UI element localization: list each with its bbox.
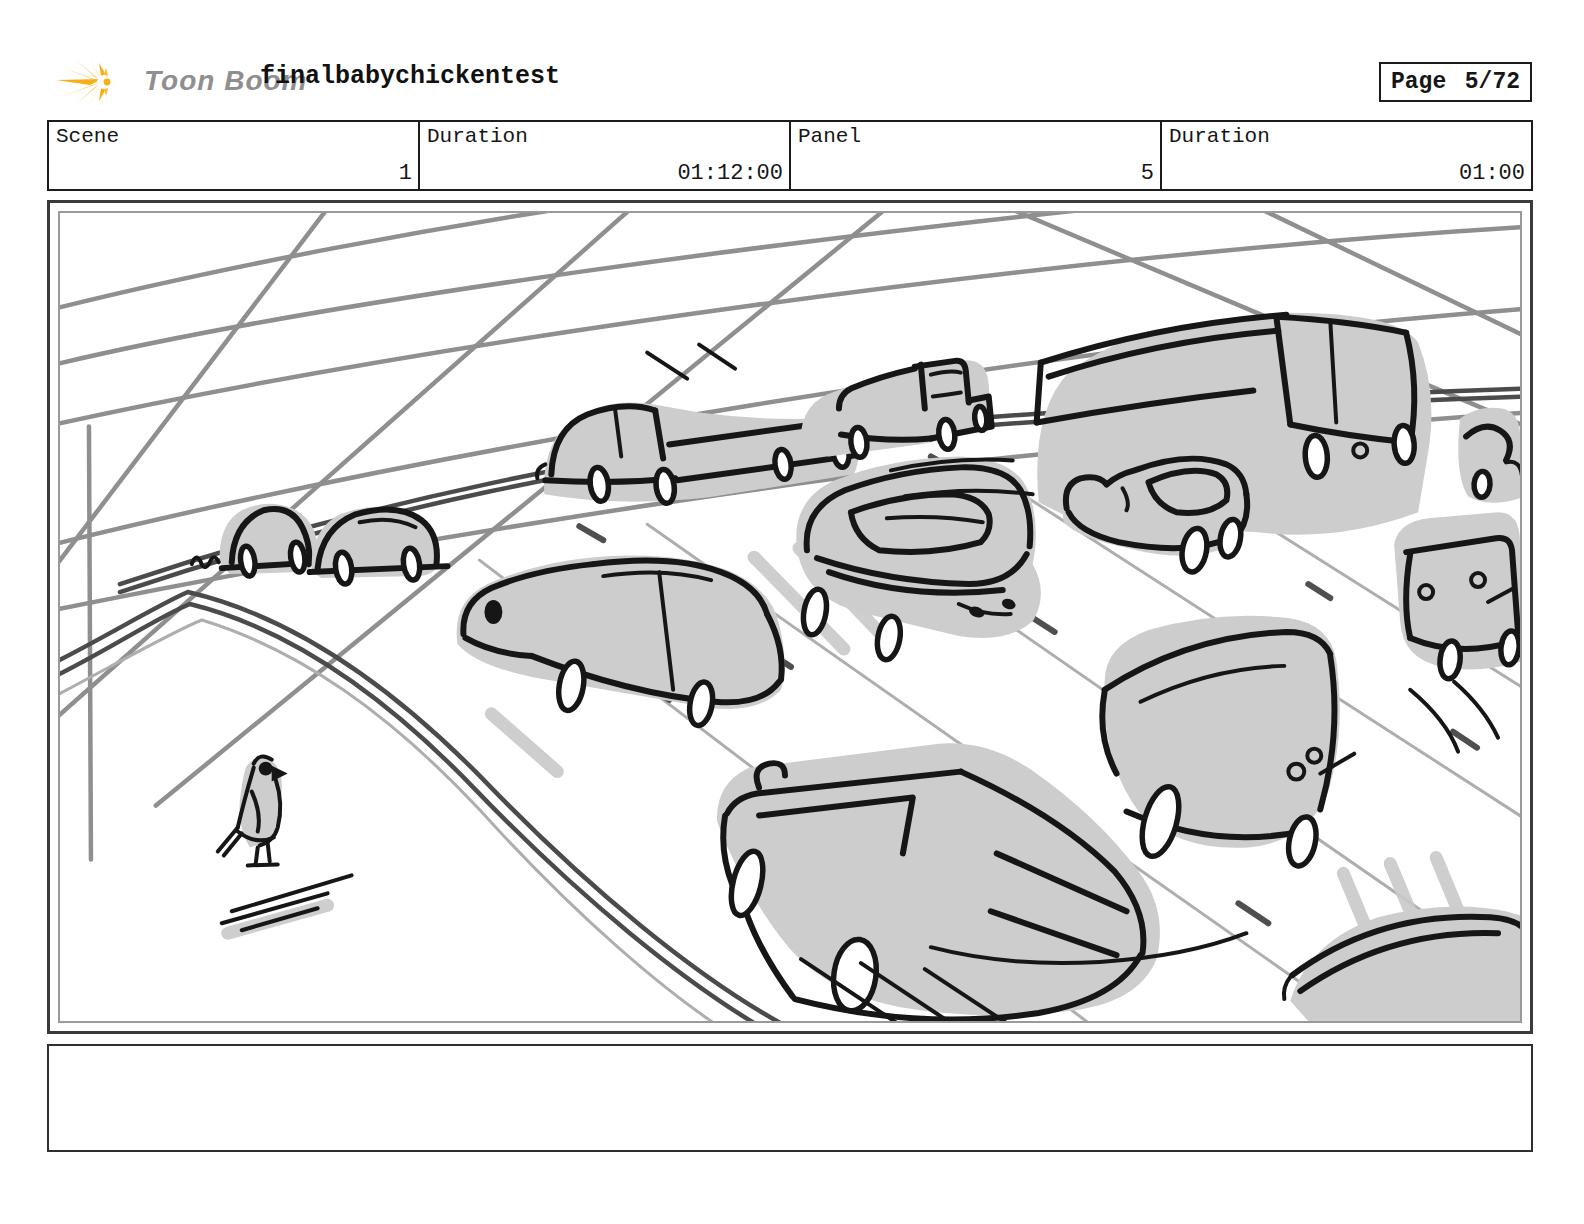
project-title: finalbabychickentest: [260, 62, 560, 91]
vehicle-sketch-hood-bottom-right: [1284, 906, 1520, 1021]
page-value: 5/72: [1465, 69, 1520, 95]
storyboard-sketch: [60, 213, 1520, 1021]
panel-duration-cell: Duration 01:00: [1162, 122, 1531, 189]
vehicle-sketch-sedan-right: [1063, 456, 1247, 574]
page-label: Page: [1391, 69, 1446, 95]
scene-cell: Scene 1: [49, 122, 420, 189]
panel-label: Panel: [798, 125, 861, 148]
scene-label: Scene: [56, 125, 119, 148]
panel-cell: Panel 5: [791, 122, 1162, 189]
panel-info-row: Scene 1 Duration 01:12:00 Panel 5 Durati…: [47, 120, 1533, 191]
vehicle-sketch-coupe-left: [457, 555, 785, 727]
storyboard-page: Toon Boom finalbabychickentest Page 5/72…: [0, 0, 1584, 1224]
scene-duration-label: Duration: [427, 125, 528, 148]
vehicle-sketch-tiny-car-1: [192, 504, 322, 577]
vehicle-sketch-partial-car-far-right: [1458, 408, 1520, 503]
page-number-box: Page 5/72: [1379, 62, 1532, 102]
toonboom-starburst-icon: [56, 52, 136, 110]
vehicle-sketch-pickup-truck: [801, 360, 992, 458]
vehicle-sketch-tiny-car-2: [310, 507, 448, 585]
storyboard-panel-frame: [47, 200, 1533, 1034]
scene-value: 1: [399, 161, 412, 186]
scene-duration-value: 01:12:00: [677, 161, 783, 186]
vehicle-sketch-suv-right: [1102, 616, 1354, 869]
storyboard-panel: [58, 211, 1522, 1023]
scene-duration-cell: Duration 01:12:00: [420, 122, 791, 189]
vehicle-sketch-partial-car-right: [1394, 512, 1520, 680]
caption-box: [47, 1044, 1533, 1152]
panel-value: 5: [1141, 161, 1154, 186]
panel-duration-label: Duration: [1169, 125, 1270, 148]
panel-duration-value: 01:00: [1459, 161, 1525, 186]
